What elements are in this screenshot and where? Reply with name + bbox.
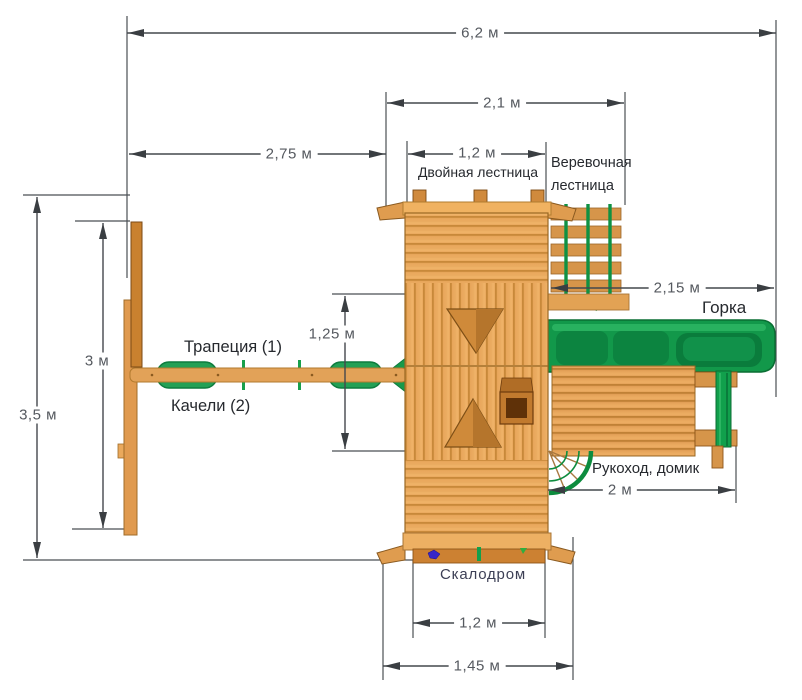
label-rope-ladder: Веревочная лестница bbox=[551, 152, 647, 198]
brace-top-right bbox=[548, 202, 576, 221]
label-double-ladder: Двойная лестница bbox=[412, 164, 544, 180]
climbing-net bbox=[549, 451, 591, 493]
house-post bbox=[712, 446, 723, 468]
label-slide: Горка bbox=[702, 298, 746, 318]
dim-swing-span: 2,75 м bbox=[261, 146, 318, 163]
rope-ladder bbox=[546, 204, 629, 310]
dim-total-depth: 3,5 м bbox=[14, 407, 62, 424]
house-deck bbox=[552, 366, 695, 456]
swing-beam bbox=[130, 368, 407, 382]
brace-bottom-left bbox=[377, 545, 405, 564]
climbing-hold-green-1 bbox=[477, 547, 481, 561]
main-tower bbox=[377, 190, 576, 564]
dim-total-width: 6,2 м bbox=[456, 25, 504, 42]
dim-platform-depth: 1,25 м bbox=[304, 326, 361, 343]
playground-plan-drawing bbox=[0, 0, 802, 700]
dim-top-section-width: 2,1 м bbox=[478, 95, 526, 112]
house-ladder-green bbox=[716, 371, 731, 447]
label-monkey-bars-house: Рукоход, домик bbox=[592, 460, 699, 477]
label-climbing-wall: Скалодром bbox=[440, 566, 526, 583]
dim-base-width: 1,45 м bbox=[449, 658, 506, 675]
swing-frame-board-upper bbox=[131, 222, 142, 367]
dim-slide-length: 2,15 м bbox=[649, 280, 706, 297]
climbing-wall-board bbox=[413, 547, 545, 563]
brace-top-left bbox=[377, 202, 405, 220]
playground-plan: 6,2 м 2,1 м 2,75 м 1,2 м 1,25 м 3 м 3,5 … bbox=[0, 0, 802, 700]
rope-ladder-shelf bbox=[546, 294, 629, 310]
brace-bottom-right bbox=[548, 545, 575, 564]
dim-house-length: 2 м bbox=[603, 482, 637, 499]
label-trapeze: Трапеция (1) bbox=[184, 338, 282, 357]
label-swings: Качели (2) bbox=[171, 397, 250, 416]
dim-climbing-wall: 1,2 м bbox=[454, 615, 502, 632]
roof-box bbox=[500, 378, 533, 424]
slide bbox=[548, 320, 775, 372]
swing-beam-group bbox=[130, 357, 407, 393]
dim-frame-height: 3 м bbox=[80, 353, 114, 370]
dim-double-ladder: 1,2 м bbox=[453, 145, 501, 162]
